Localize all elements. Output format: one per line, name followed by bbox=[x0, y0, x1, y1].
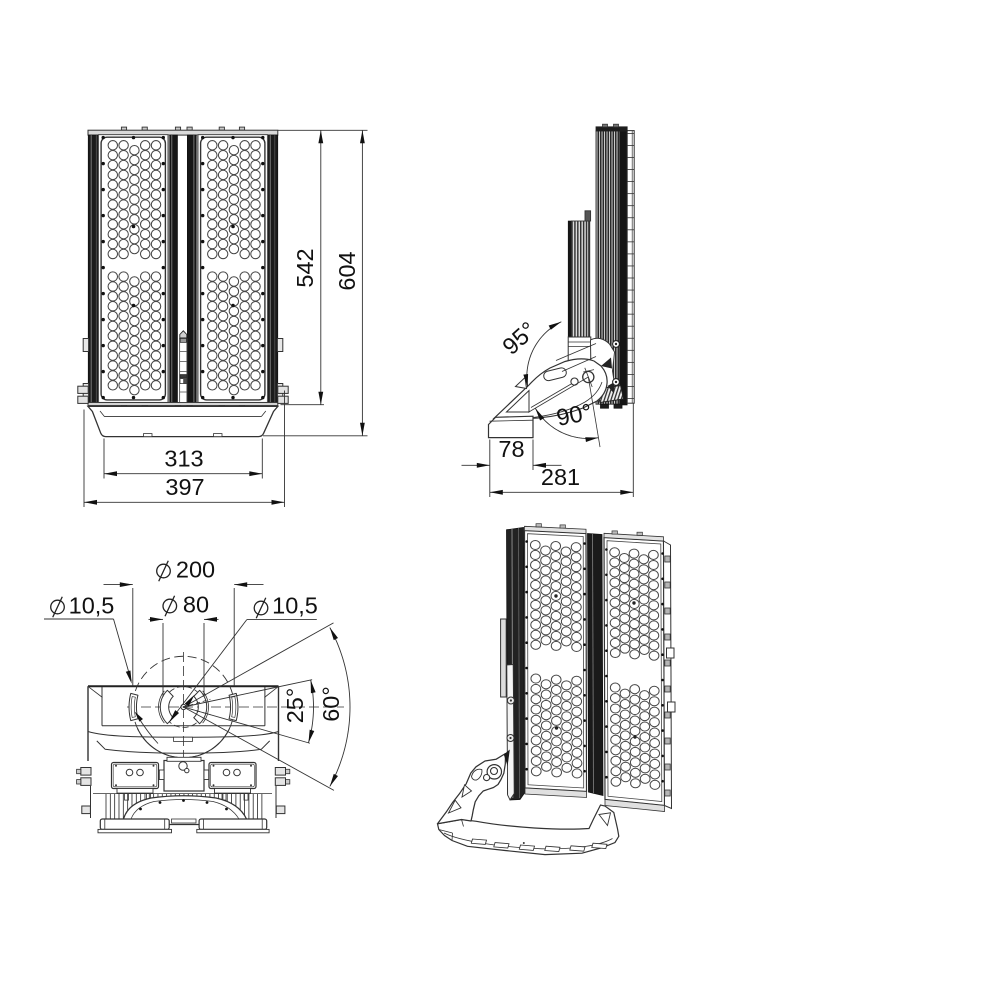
svg-text:542: 542 bbox=[292, 248, 318, 287]
svg-text:604: 604 bbox=[334, 251, 360, 290]
svg-text:90°: 90° bbox=[554, 399, 594, 431]
svg-text:313: 313 bbox=[164, 446, 203, 472]
svg-text:60°: 60° bbox=[318, 686, 344, 722]
svg-text:25°: 25° bbox=[282, 688, 308, 724]
svg-text:10,5: 10,5 bbox=[69, 593, 115, 619]
svg-text:281: 281 bbox=[541, 464, 580, 490]
svg-text:397: 397 bbox=[165, 474, 204, 500]
svg-text:200: 200 bbox=[176, 557, 215, 583]
svg-text:80: 80 bbox=[183, 592, 209, 618]
svg-text:95°: 95° bbox=[497, 317, 541, 360]
svg-text:10,5: 10,5 bbox=[272, 593, 318, 619]
svg-text:78: 78 bbox=[498, 436, 524, 462]
